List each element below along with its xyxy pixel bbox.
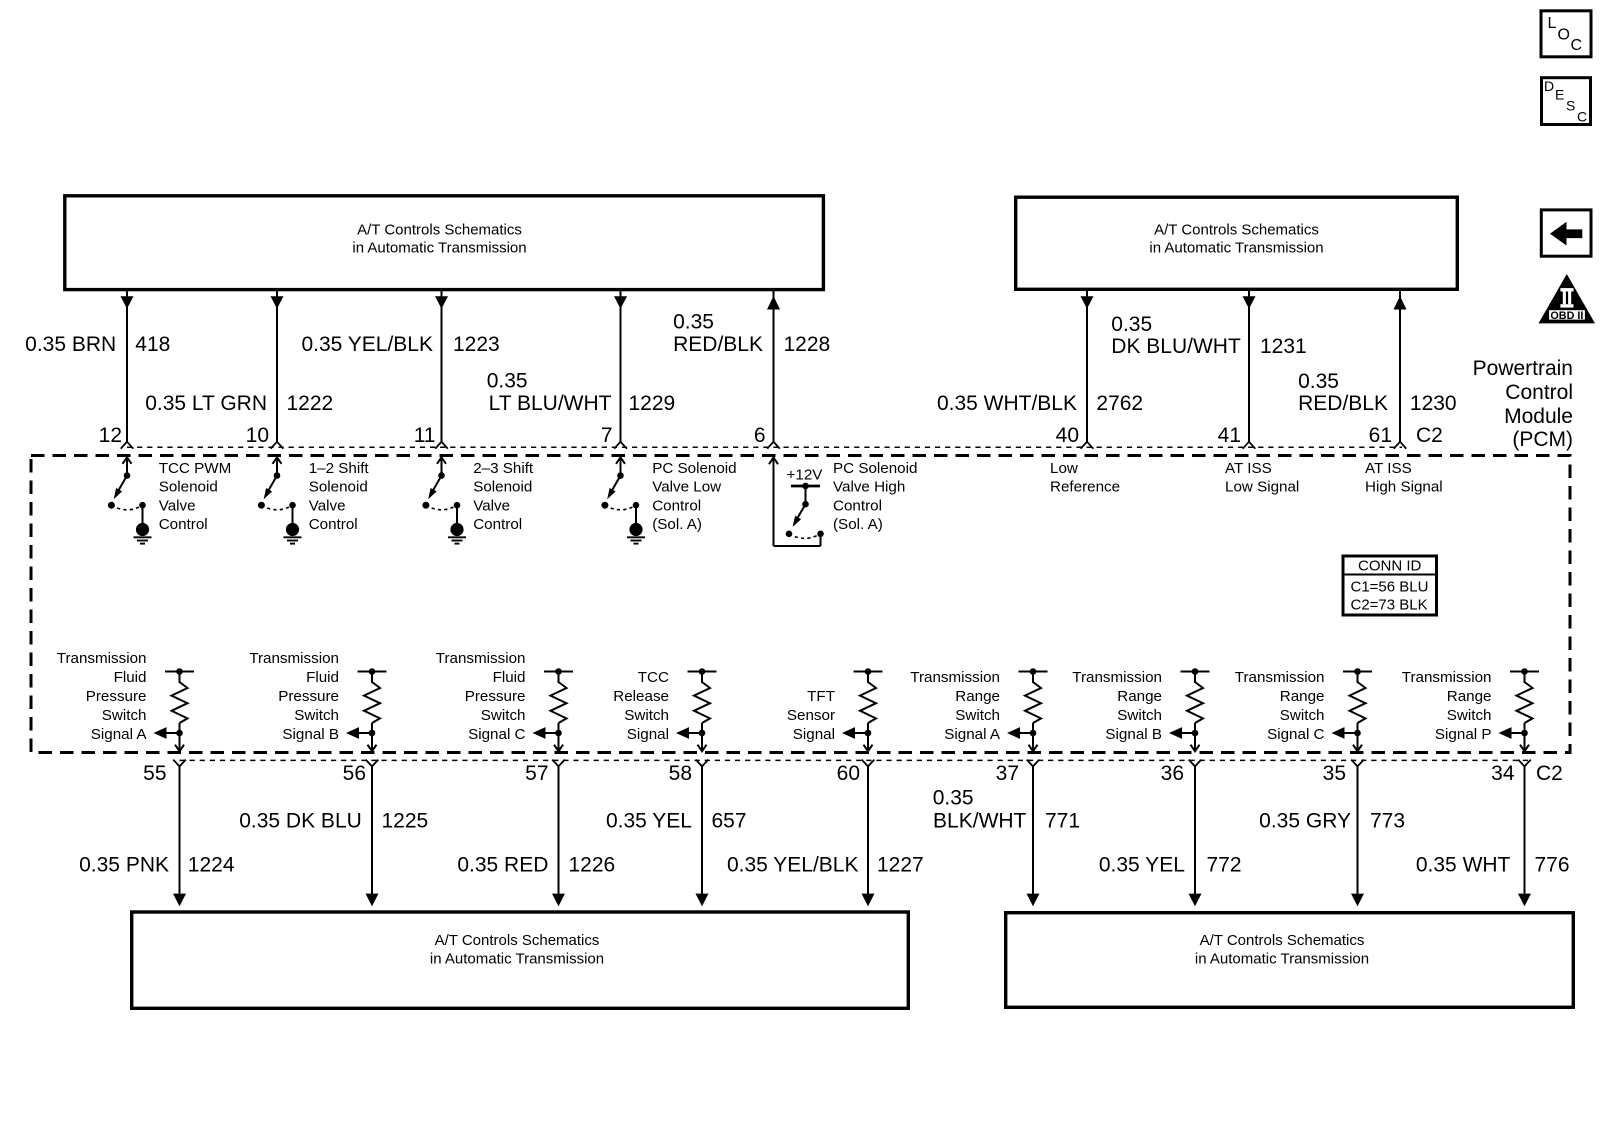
svg-text:L: L [1548,15,1557,32]
svg-text:C2: C2 [1416,424,1443,447]
svg-text:1224: 1224 [188,854,235,877]
svg-text:1229: 1229 [629,392,676,415]
svg-text:Control: Control [833,497,882,514]
svg-text:0.35 PNK: 0.35 PNK [79,854,169,877]
svg-text:0.35: 0.35 [1298,370,1339,393]
svg-text:Switch: Switch [1447,707,1492,724]
svg-text:58: 58 [669,762,692,785]
svg-text:0.35 YEL/BLK: 0.35 YEL/BLK [301,333,433,356]
svg-text:C: C [1577,109,1587,125]
svg-text:A/T Controls Schematics: A/T Controls Schematics [1154,222,1319,239]
svg-text:57: 57 [525,762,548,785]
svg-text:Transmission: Transmission [436,650,526,667]
svg-text:1231: 1231 [1260,335,1307,358]
svg-text:Control: Control [159,516,208,533]
svg-text:Valve: Valve [309,497,346,514]
svg-text:Signal A: Signal A [944,726,1001,743]
svg-text:Solenoid: Solenoid [159,479,218,496]
svg-text:Solenoid: Solenoid [309,479,368,496]
svg-text:0.35 YEL: 0.35 YEL [606,810,692,833]
svg-text:0.35: 0.35 [1111,313,1152,336]
svg-text:C2: C2 [1536,762,1563,785]
svg-text:RED/BLK: RED/BLK [673,333,763,356]
svg-text:Valve: Valve [473,497,510,514]
svg-text:DK BLU/WHT: DK BLU/WHT [1111,335,1241,358]
svg-text:0.35 GRY: 0.35 GRY [1259,810,1351,833]
svg-text:(PCM): (PCM) [1512,428,1573,451]
svg-text:Pressure: Pressure [86,688,147,705]
svg-text:Signal C: Signal C [1267,726,1324,743]
svg-text:773: 773 [1370,810,1405,833]
svg-text:40: 40 [1056,424,1079,447]
svg-text:56: 56 [343,762,366,785]
svg-text:Signal P: Signal P [1435,726,1492,743]
svg-text:Signal: Signal [627,726,669,743]
svg-text:772: 772 [1207,854,1242,877]
svg-text:Signal B: Signal B [282,726,339,743]
svg-text:E: E [1555,87,1564,103]
svg-text:C2=73 BLK: C2=73 BLK [1351,597,1428,614]
svg-text:0.35 DK BLU: 0.35 DK BLU [239,810,362,833]
svg-text:Switch: Switch [294,707,339,724]
svg-text:Powertrain: Powertrain [1473,357,1573,380]
svg-text:Fluid: Fluid [493,669,526,686]
svg-text:2–3 Shift: 2–3 Shift [473,460,534,477]
svg-text:Transmission: Transmission [249,650,339,667]
svg-text:Fluid: Fluid [114,669,147,686]
svg-text:A/T Controls Schematics: A/T Controls Schematics [435,932,600,949]
svg-text:AT ISS: AT ISS [1365,460,1412,477]
svg-text:34: 34 [1491,762,1515,785]
svg-text:2762: 2762 [1096,392,1143,415]
svg-text:Valve Low: Valve Low [652,479,721,496]
svg-text:OBD II: OBD II [1550,310,1583,322]
svg-text:Control: Control [309,516,358,533]
svg-text:Signal: Signal [793,726,835,743]
svg-text:Valve High: Valve High [833,479,905,496]
svg-text:D: D [1544,78,1554,94]
svg-text:37: 37 [996,762,1019,785]
svg-text:0.35: 0.35 [487,370,528,393]
svg-text:776: 776 [1535,854,1570,877]
svg-text:418: 418 [135,333,170,356]
svg-text:0.35 YEL/BLK: 0.35 YEL/BLK [727,854,859,877]
svg-text:S: S [1566,98,1575,114]
svg-text:Control: Control [652,497,701,514]
svg-text:0.35: 0.35 [933,787,974,810]
svg-text:0.35 WHT: 0.35 WHT [1416,854,1511,877]
svg-text:771: 771 [1045,810,1080,833]
svg-text:TFT: TFT [807,688,835,705]
svg-text:A/T Controls Schematics: A/T Controls Schematics [1200,932,1365,949]
svg-text:Switch: Switch [1280,707,1325,724]
svg-text:Valve: Valve [159,497,196,514]
svg-text:61: 61 [1369,424,1392,447]
svg-text:1226: 1226 [569,854,616,877]
svg-text:0.35 RED: 0.35 RED [457,854,548,877]
svg-text:Transmission: Transmission [1402,669,1492,686]
svg-text:657: 657 [712,810,747,833]
svg-text:Control: Control [473,516,522,533]
svg-text:1223: 1223 [453,333,500,356]
svg-text:0.35 WHT/BLK: 0.35 WHT/BLK [937,392,1077,415]
svg-text:Sensor: Sensor [787,707,835,724]
svg-text:Range: Range [1117,688,1162,705]
svg-text:Control: Control [1505,381,1573,404]
svg-text:1228: 1228 [784,333,831,356]
svg-text:Transmission: Transmission [910,669,1000,686]
svg-text:PC Solenoid: PC Solenoid [652,460,736,477]
svg-text:11: 11 [414,424,436,447]
svg-text:Low Signal: Low Signal [1225,479,1299,496]
svg-text:in Automatic Transmission: in Automatic Transmission [1149,240,1323,257]
svg-text:RED/BLK: RED/BLK [1298,392,1388,415]
svg-text:Signal C: Signal C [468,726,525,743]
svg-text:55: 55 [143,762,166,785]
svg-text:(Sol. A): (Sol. A) [833,516,883,533]
svg-text:(Sol. A): (Sol. A) [652,516,702,533]
svg-text:Pressure: Pressure [465,688,526,705]
svg-text:1227: 1227 [877,854,924,877]
svg-text:+12V: +12V [787,466,824,483]
svg-text:0.35 BRN: 0.35 BRN [25,333,116,356]
svg-text:0.35 YEL: 0.35 YEL [1099,854,1185,877]
svg-text:7: 7 [601,424,613,447]
svg-text:Release: Release [613,688,669,705]
svg-text:High Signal: High Signal [1365,479,1443,496]
svg-text:CONN ID: CONN ID [1358,558,1422,575]
svg-text:Switch: Switch [955,707,1000,724]
svg-text:C1=56 BLU: C1=56 BLU [1351,579,1429,596]
svg-text:C: C [1571,37,1583,54]
svg-text:Module: Module [1504,405,1573,428]
svg-text:in Automatic Transmission: in Automatic Transmission [352,240,526,257]
svg-text:1225: 1225 [382,810,429,833]
svg-text:1222: 1222 [287,392,334,415]
svg-text:Range: Range [955,688,1000,705]
svg-text:Pressure: Pressure [278,688,339,705]
svg-text:0.35 LT GRN: 0.35 LT GRN [145,392,267,415]
svg-text:Switch: Switch [1117,707,1162,724]
svg-text:1230: 1230 [1410,392,1457,415]
svg-text:36: 36 [1161,762,1184,785]
svg-text:10: 10 [246,424,269,447]
svg-text:LT BLU/WHT: LT BLU/WHT [489,392,612,415]
svg-text:Switch: Switch [624,707,669,724]
svg-text:Signal A: Signal A [91,726,148,743]
svg-text:0.35: 0.35 [673,311,714,334]
svg-text:in Automatic Transmission: in Automatic Transmission [1195,951,1369,968]
svg-text:in Automatic Transmission: in Automatic Transmission [430,951,604,968]
svg-text:Solenoid: Solenoid [473,479,532,496]
svg-text:Switch: Switch [102,707,147,724]
svg-text:6: 6 [754,424,766,447]
svg-text:O: O [1558,27,1570,44]
svg-text:Switch: Switch [481,707,526,724]
svg-text:BLK/WHT: BLK/WHT [933,810,1027,833]
svg-text:Transmission: Transmission [1072,669,1162,686]
svg-text:41: 41 [1218,424,1241,447]
svg-text:TCC: TCC [638,669,669,686]
svg-text:TCC PWM: TCC PWM [159,460,232,477]
svg-text:Transmission: Transmission [1235,669,1325,686]
svg-text:35: 35 [1323,762,1346,785]
svg-text:60: 60 [837,762,860,785]
svg-text:Fluid: Fluid [306,669,339,686]
svg-text:12: 12 [99,424,122,447]
svg-text:1–2 Shift: 1–2 Shift [309,460,370,477]
svg-text:Transmission: Transmission [57,650,147,667]
svg-text:PC Solenoid: PC Solenoid [833,460,917,477]
svg-text:A/T Controls Schematics: A/T Controls Schematics [357,222,522,239]
svg-text:Range: Range [1280,688,1325,705]
svg-text:AT ISS: AT ISS [1225,460,1272,477]
svg-text:Low: Low [1050,460,1078,477]
svg-text:Reference: Reference [1050,479,1120,496]
svg-text:Signal B: Signal B [1105,726,1162,743]
svg-text:Range: Range [1447,688,1492,705]
